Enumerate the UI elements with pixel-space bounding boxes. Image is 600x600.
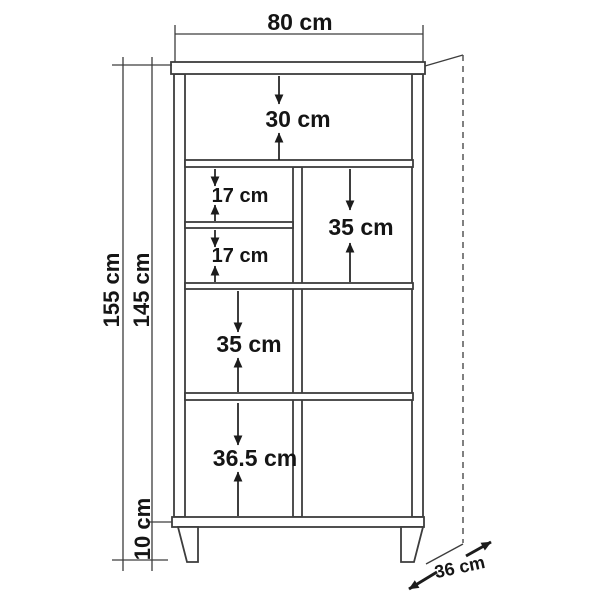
dim-top-section: 30 cm [265, 76, 330, 160]
left-compartment-1-label: 17 cm [212, 185, 269, 207]
left-middle-compartment-label: 35 cm [216, 331, 281, 357]
cabinet-left-side-panel [174, 74, 185, 517]
dim-right-compartment: 35 cm [328, 169, 393, 282]
leg-height-label: 10 cm [130, 498, 155, 560]
depth-top-edge-line [425, 55, 463, 66]
dim-left-compartment-2: 17 cm [212, 230, 269, 282]
cabinet-right-side-panel [412, 74, 423, 517]
shelf-under-top-section [185, 160, 413, 167]
top-width-label: 80 cm [267, 9, 332, 35]
arrow-down-left-icon [409, 572, 437, 589]
left-compartment-2-label: 17 cm [212, 245, 269, 267]
cabinet-right-leg [401, 527, 423, 562]
dim-left-middle-compartment: 35 cm [216, 291, 281, 392]
diagram-svg: 80 cm 155 cm 145 cm 10 cm 30 cm 17 cm [0, 0, 600, 600]
cabinet-left-leg [178, 527, 198, 562]
dim-depth: 36 cm [409, 542, 491, 589]
shelf-lower-full [185, 393, 413, 400]
shelf-middle-full [185, 283, 413, 289]
dim-left-bottom-compartment: 36.5 cm [213, 403, 297, 516]
left-bottom-compartment-label: 36.5 cm [213, 445, 297, 471]
shelf-left-small [185, 222, 293, 228]
cabinet-top-panel [171, 62, 425, 74]
cabinet-bottom-panel [172, 517, 424, 527]
dim-left-compartment-1: 17 cm [212, 169, 269, 221]
total-height-label: 155 cm [99, 253, 124, 328]
carcass-height-label: 145 cm [129, 253, 154, 328]
top-section-label: 30 cm [265, 106, 330, 132]
dim-left-heights: 155 cm 145 cm 10 cm [99, 57, 172, 571]
right-compartment-label: 35 cm [328, 214, 393, 240]
furniture-dimension-diagram: 80 cm 155 cm 145 cm 10 cm 30 cm 17 cm [0, 0, 600, 600]
dim-top-width: 80 cm [175, 9, 423, 62]
